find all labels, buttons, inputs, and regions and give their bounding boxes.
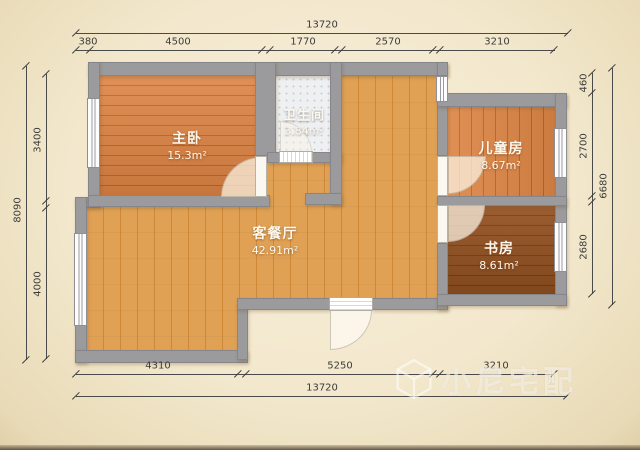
window-living-room: [74, 233, 87, 326]
door-entrance: [329, 297, 373, 311]
room-name-study: 书房: [479, 238, 519, 258]
wall-divider-vertical-a: [437, 62, 448, 76]
dim-right-total: 6680: [599, 173, 610, 198]
door-leaf-kids-room: [437, 156, 448, 196]
dim-tick: [588, 290, 596, 298]
dim-top-seg5: 3210: [484, 37, 509, 48]
room-area-master-bedroom: 15.3m²: [167, 149, 207, 162]
room-label-study: 书房 8.61m²: [479, 238, 519, 272]
dim-top-seg3: 1770: [290, 37, 315, 48]
dim-right-seg3: 2680: [579, 234, 590, 259]
wall-study-bottom: [437, 294, 567, 306]
dim-left-seg2: 4000: [33, 271, 44, 296]
wall-kids-top: [437, 93, 567, 107]
room-area-bathroom: 3.84m²: [283, 125, 325, 138]
door-leaf-study: [437, 205, 448, 243]
wall-divider-vertical-b: [437, 100, 448, 156]
dim-tick: [550, 46, 558, 54]
dim-bottom-seg1: 4310: [145, 361, 170, 372]
room-area-living-dining: 42.91m²: [252, 244, 299, 257]
window-living-nook: [436, 76, 448, 102]
dim-bottom-total: 13720: [306, 383, 338, 394]
room-name-kids-room: 儿童房: [479, 138, 524, 158]
dim-top-seg4: 2570: [375, 37, 400, 48]
window-master-bedroom: [87, 98, 100, 168]
room-label-living-dining: 客餐厅 42.91m²: [252, 223, 299, 257]
room-name-master-bedroom: 主卧: [167, 128, 207, 148]
window-study: [554, 222, 567, 272]
room-label-bathroom: 卫生间 3.84m²: [283, 105, 325, 138]
room-name-bathroom: 卫生间: [283, 105, 325, 124]
window-kids-room: [554, 128, 567, 178]
door-arc-entrance: [330, 310, 372, 350]
dim-top-seg2: 4500: [165, 37, 190, 48]
dim-tick: [42, 355, 50, 363]
watermark-brand-text: 小尼宅配: [441, 357, 577, 401]
wall-bath-right: [330, 62, 342, 205]
room-area-kids-room: 8.67m²: [479, 159, 524, 172]
room-name-living-dining: 客餐厅: [252, 223, 299, 243]
dim-right-seg2: 2700: [579, 133, 590, 158]
dim-left-seg1: 3400: [33, 127, 44, 152]
floorplan-canvas: 主卧 15.3m² 卫生间 3.84m² 儿童房 8.67m² 书房 8.61m…: [0, 0, 640, 450]
watermark: 小尼宅配: [393, 357, 577, 401]
dim-bottom-seg2: 5250: [327, 361, 352, 372]
door-leaf-master-bedroom: [255, 156, 267, 197]
room-label-kids-room: 儿童房 8.67m²: [479, 138, 524, 172]
door-bathroom: [279, 151, 313, 163]
wall-hall-stub: [305, 193, 342, 205]
dim-top-total: 13720: [306, 20, 338, 31]
dim-left-total: 8090: [13, 197, 24, 222]
dim-tick: [564, 29, 572, 37]
dim-tick: [608, 301, 616, 309]
wall-bottom-mid: [237, 298, 330, 310]
photo-edge-shadow: [0, 445, 640, 450]
dim-top-seg1: 380: [78, 37, 97, 48]
dim-right-seg1: 460: [579, 73, 590, 92]
room-label-master-bedroom: 主卧 15.3m²: [167, 128, 207, 162]
wall-master-bath: [255, 62, 276, 156]
room-area-study: 8.61m²: [479, 259, 519, 272]
dim-tick: [22, 356, 30, 364]
watermark-logo-cube-icon: [393, 358, 435, 400]
